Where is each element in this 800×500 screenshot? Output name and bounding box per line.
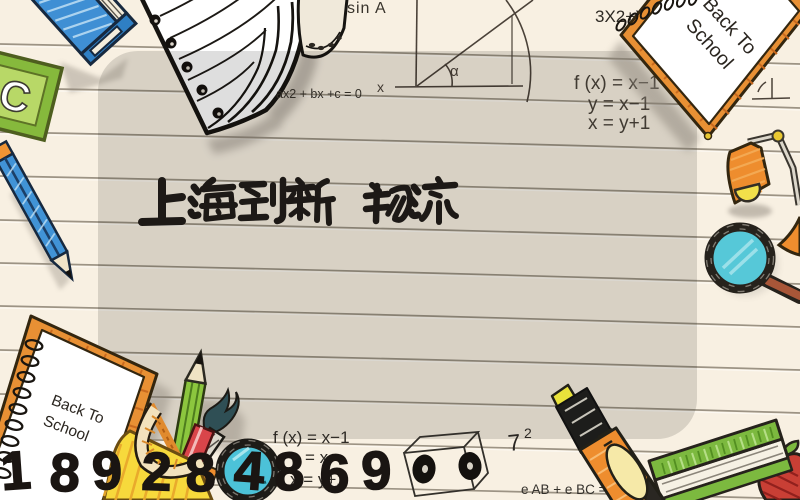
svg-text:7: 7	[507, 429, 522, 456]
svg-text:1: 1	[0, 440, 33, 500]
svg-text:9: 9	[90, 440, 123, 500]
svg-text:8: 8	[184, 443, 216, 500]
svg-text:6: 6	[319, 444, 351, 500]
svg-text:9: 9	[360, 441, 392, 500]
svg-text:y = x−1: y = x−1	[588, 94, 650, 115]
svg-text:2: 2	[524, 425, 532, 441]
svg-text:2: 2	[141, 442, 173, 500]
svg-text:8: 8	[272, 441, 305, 500]
svg-text:4: 4	[232, 440, 266, 500]
svg-text:8: 8	[48, 442, 81, 500]
svg-text:x = y+1: x = y+1	[588, 113, 650, 134]
svg-text:sin A: sin A	[347, 0, 387, 17]
